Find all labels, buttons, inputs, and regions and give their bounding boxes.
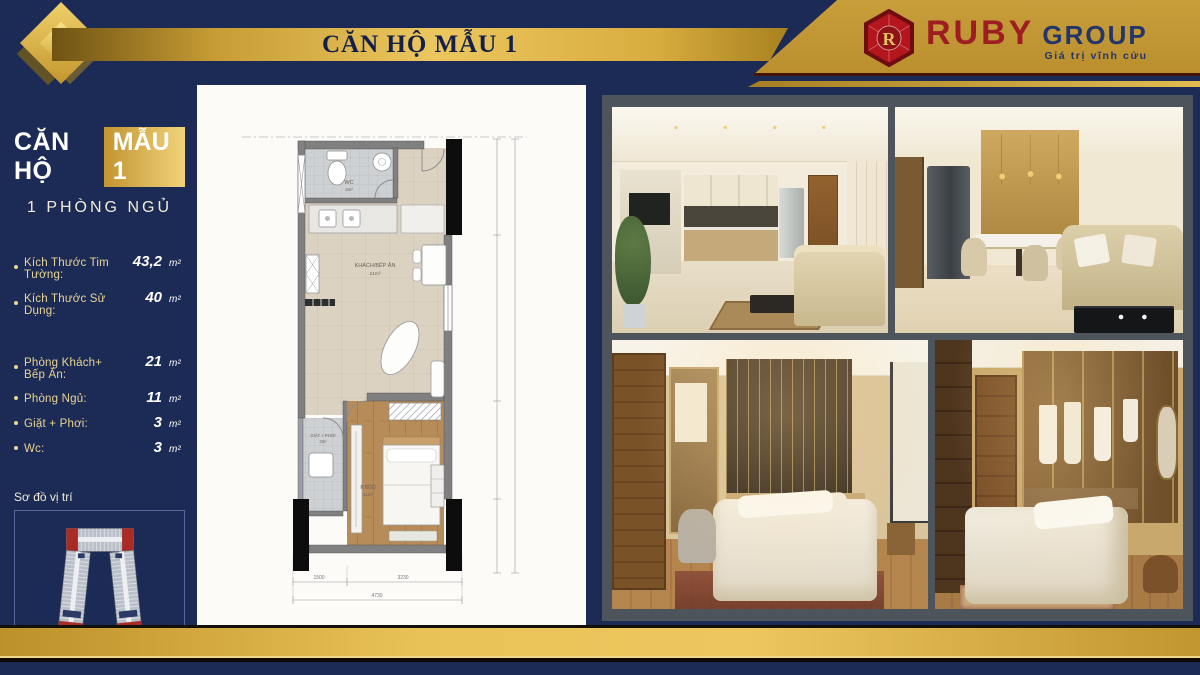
kitchen-cabinet <box>401 205 444 233</box>
shape-plant <box>615 216 651 306</box>
toilet-bowl <box>328 161 346 185</box>
living-area: 21m² <box>370 271 381 277</box>
laundry-label: GIẶT + PHƠI <box>310 433 335 438</box>
spec-label: Giặt + Phơi: <box>24 418 124 430</box>
spec-label: Phòng Khách+ Bếp Ăn: <box>24 357 124 381</box>
floor-plan-panel: WC 3m² KHÁCH/BẾP ĂN 21m² GIẶT + PHƠI 3m²… <box>197 85 586 625</box>
brand-underline <box>748 81 1200 87</box>
dining-table <box>422 245 446 285</box>
header-title-bar: CĂN HỘ MẪU 1 <box>52 28 788 61</box>
apartment-title: CĂN HỘ MẪU 1 <box>14 127 185 187</box>
spec-value: 3 <box>124 439 162 456</box>
wc-label: WC <box>344 180 353 186</box>
apartment-subtitle: 1 PHÒNG NGỦ <box>14 199 185 217</box>
living-label: KHÁCH/BẾP ĂN <box>355 262 396 269</box>
spec-unit: m² <box>169 419 185 430</box>
ruby-gem-icon: R <box>862 9 916 67</box>
bedroom-closet <box>351 425 362 533</box>
shape-ceiling-lights <box>662 121 839 135</box>
bed-pillows <box>387 449 436 462</box>
bullet-icon <box>14 365 18 369</box>
spec-label: Kích Thước Sử Dụng: <box>24 293 124 317</box>
spec-row-tim-tuong: Kích Thước Tim Tường: 43,2 m² <box>14 253 185 281</box>
spec-unit: m² <box>169 394 185 405</box>
spec-unit: m² <box>169 358 185 369</box>
photo-grid <box>602 95 1193 621</box>
shape-backsplash <box>684 206 778 226</box>
spec-row-wc: Wc: 3 m² <box>14 439 185 456</box>
spec-label: Phòng Ngủ: <box>24 393 124 405</box>
spec-row-khach-bep: Phòng Khách+ Bếp Ăn: 21 m² <box>14 353 185 381</box>
bullet-icon <box>14 301 18 305</box>
bullet-icon <box>14 396 18 400</box>
toilet-tank <box>327 151 347 160</box>
spec-label: Kích Thước Tim Tường: <box>24 257 124 281</box>
nightstand-column <box>431 465 444 507</box>
bullet-icon <box>14 421 18 425</box>
ac-vent <box>389 403 441 420</box>
location-label: Sơ đồ vị trí <box>14 490 185 504</box>
spec-row-giat-phoi: Giặt + Phơi: 3 m² <box>14 414 185 431</box>
shape-plant-pot <box>623 304 645 329</box>
photo-bedroom-1 <box>612 340 928 609</box>
brand-text: RUBY GROUP Giá trị vĩnh cửu <box>926 14 1148 62</box>
shape-warm-glow <box>612 340 928 609</box>
dim-right: 3230 <box>397 575 408 581</box>
sofa-bench <box>431 361 444 397</box>
low-cabinet <box>305 299 335 306</box>
apartment-title-highlight: MẪU 1 <box>104 127 185 187</box>
shape-counter <box>684 227 778 262</box>
brand-tagline: Giá trị vĩnh cửu <box>1044 50 1147 62</box>
bullet-icon <box>14 265 18 269</box>
spec-value: 3 <box>124 414 162 431</box>
ruby-monogram: R <box>883 29 897 49</box>
shape-upper-cabinets <box>684 175 778 207</box>
spec-row-su-dung: Kích Thước Sử Dụng: 40 m² <box>14 289 185 317</box>
bedroom-label: P.NGỦ <box>360 484 376 491</box>
wash-basin <box>373 153 391 171</box>
dining-chair-1 <box>413 250 421 263</box>
page-title: CĂN HỘ MẪU 1 <box>322 31 518 59</box>
specs-primary-list: Kích Thước Tim Tường: 43,2 m² Kích Thước… <box>14 253 185 317</box>
shape-cabinet <box>895 157 924 288</box>
wc-area: 3m² <box>345 187 353 192</box>
floor-plan-drawing: WC 3m² KHÁCH/BẾP ĂN 21m² GIẶT + PHƠI 3m²… <box>197 85 586 625</box>
bullet-icon <box>14 446 18 450</box>
spec-unit: m² <box>169 294 185 305</box>
specs-rooms-list: Phòng Khách+ Bếp Ăn: 21 m² Phòng Ngủ: 11… <box>14 353 185 456</box>
spec-value: 11 <box>124 389 162 406</box>
shape-pillow <box>1121 234 1156 267</box>
bed-bench <box>389 531 437 541</box>
shape-ceiling <box>612 107 888 162</box>
spec-unit: m² <box>169 258 185 269</box>
spec-value: 21 <box>124 353 162 370</box>
shape-pillow <box>1074 233 1110 267</box>
dim-left: 1500 <box>313 575 324 581</box>
bottom-gold-bar <box>0 625 1200 662</box>
shape-chair <box>1022 245 1048 281</box>
shape-sofa <box>794 245 885 326</box>
brand-panel: R RUBY GROUP Giá trị vĩnh cửu <box>752 0 1200 76</box>
sidebar: CĂN HỘ MẪU 1 1 PHÒNG NGỦ Kích Thước Tim … <box>0 85 197 625</box>
bedroom-area: 11m² <box>363 492 373 497</box>
shape-dining-table <box>976 234 1062 248</box>
dim-total: 4730 <box>371 593 382 599</box>
service-shaft <box>306 255 319 293</box>
spec-unit: m² <box>169 444 185 455</box>
presentation-slide: CĂN HỘ MẪU 1 R RUBY GROUP Giá trị vĩnh c… <box>0 0 1200 675</box>
brand-suffix: GROUP <box>1042 20 1147 51</box>
photo-living-kitchen <box>612 107 888 333</box>
bed-headboard <box>383 437 440 445</box>
washing-machine <box>309 453 333 477</box>
photo-dining-kitchen <box>895 107 1183 333</box>
shape-table-leg <box>1016 247 1022 276</box>
shape-warm-glow <box>935 340 1183 609</box>
spec-value: 43,2 <box>124 253 162 270</box>
spec-value: 40 <box>124 289 162 306</box>
apartment-title-prefix: CĂN HỘ <box>14 128 97 186</box>
laundry-area: 3m² <box>319 439 327 444</box>
spec-label: Wc: <box>24 443 124 455</box>
dining-chair-2 <box>413 268 421 281</box>
brand-name: RUBY <box>926 14 1034 53</box>
shape-pendant-lamps <box>990 134 1071 184</box>
shape-cups <box>1108 310 1160 324</box>
spec-row-phong-ngu: Phòng Ngủ: 11 m² <box>14 389 185 406</box>
shape-chair <box>961 238 987 276</box>
photo-bedroom-2 <box>935 340 1183 609</box>
